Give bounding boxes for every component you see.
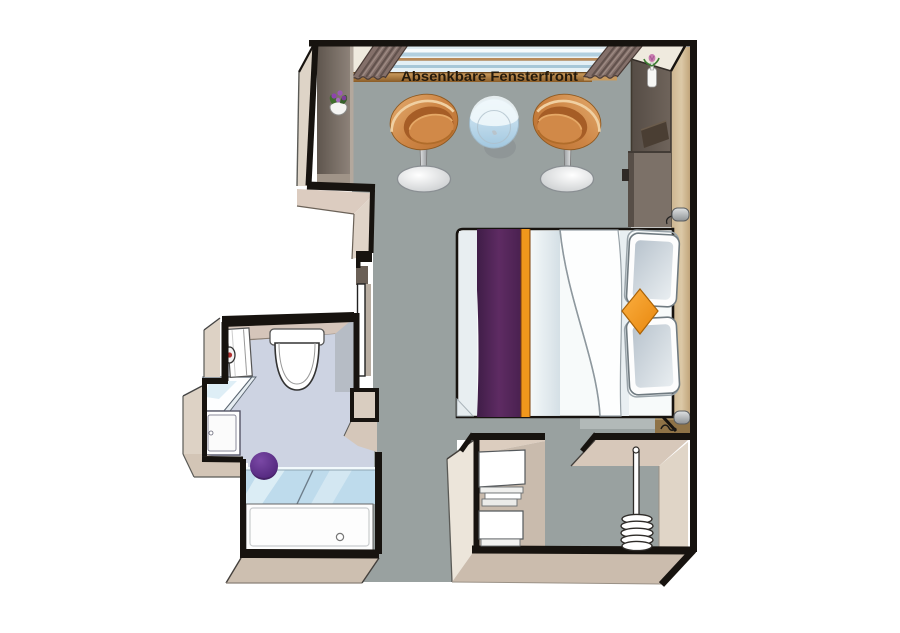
svg-text:Absenkbare Fensterfront: Absenkbare Fensterfront: [401, 69, 579, 84]
